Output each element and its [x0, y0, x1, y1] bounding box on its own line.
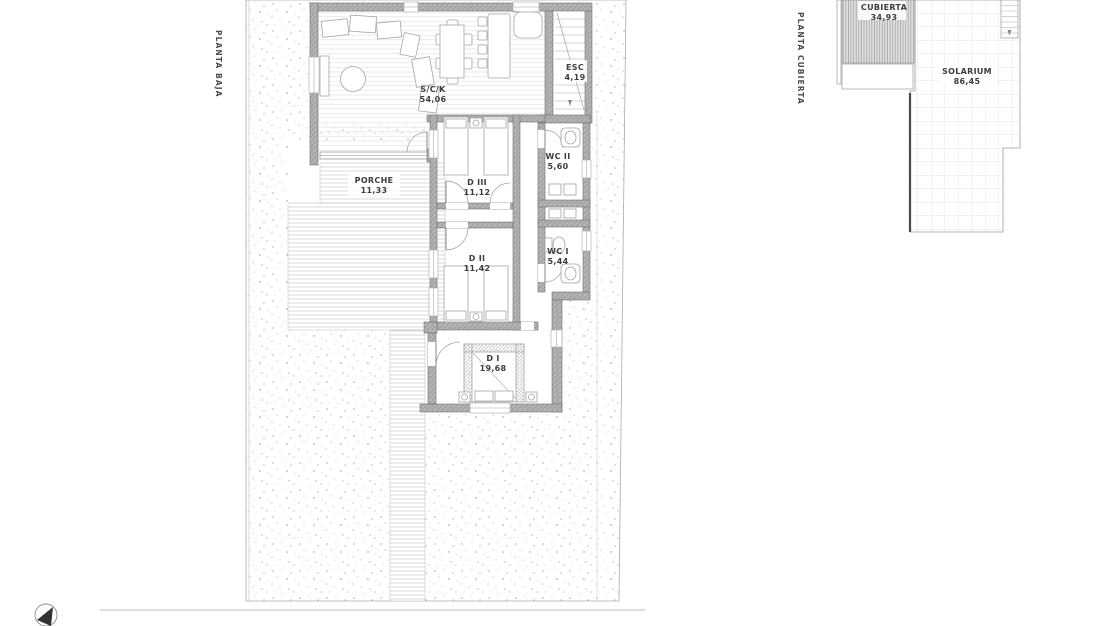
floor-plan-sheet: S/C/K 54,06 ESC 4,19 WC II 5,60 D III 11…	[0, 0, 1110, 626]
room-label-wc2: WC II 5,60	[546, 152, 571, 171]
roof-edge-line	[837, 0, 841, 84]
svg-text:WC II: WC II	[546, 152, 571, 161]
tv-shelf	[320, 56, 329, 96]
svg-text:19,68: 19,68	[480, 364, 507, 373]
svg-text:5,44: 5,44	[548, 257, 569, 266]
wc2-appliance	[549, 184, 561, 195]
svg-text:11,12: 11,12	[464, 188, 491, 197]
svg-text:5,60: 5,60	[548, 162, 569, 171]
room-label-wc1: WC I 5,44	[547, 247, 569, 266]
plan-title-planta-cubierta: PLANTA CUBIERTA	[796, 12, 805, 105]
north-arrow-icon	[35, 604, 57, 626]
plan-drawing: S/C/K 54,06 ESC 4,19 WC II 5,60 D III 11…	[0, 0, 1110, 626]
svg-text:ESC: ESC	[566, 63, 584, 72]
room-label-sck: S/C/K 54,06	[420, 85, 447, 104]
sliding-door	[320, 152, 427, 159]
roof-overhang	[842, 64, 913, 89]
plan-title-planta-baja: PLANTA BAJA	[214, 30, 223, 98]
svg-text:D II: D II	[469, 254, 486, 263]
coffee-table	[341, 67, 366, 92]
room-label-esc: ESC 4,19	[563, 60, 587, 82]
kitchen-counter	[514, 12, 542, 38]
svg-text:D I: D I	[486, 354, 499, 363]
room-label-porche: PORCHE 11,33	[348, 173, 400, 196]
svg-text:11,42: 11,42	[464, 264, 491, 273]
svg-text:CUBIERTA: CUBIERTA	[861, 3, 908, 12]
svg-text:54,06: 54,06	[420, 95, 447, 104]
svg-text:34,93: 34,93	[871, 13, 898, 22]
svg-text:11,33: 11,33	[361, 186, 388, 195]
roof-stairs	[1001, 0, 1018, 38]
plan-planta-cubierta: CUBIERTA 34,93 SOLARIUM 86,45 PLANTA CUB…	[796, 0, 1020, 232]
svg-text:SOLARIUM: SOLARIUM	[942, 67, 992, 76]
svg-text:WC I: WC I	[547, 247, 569, 256]
svg-text:S/C/K: S/C/K	[420, 85, 446, 94]
plan-planta-baja: S/C/K 54,06 ESC 4,19 WC II 5,60 D III 11…	[100, 0, 645, 610]
svg-text:4,19: 4,19	[565, 73, 586, 82]
room-label-cubierta: CUBIERTA 34,93	[858, 1, 908, 22]
svg-text:86,45: 86,45	[954, 77, 981, 86]
svg-text:D III: D III	[467, 178, 487, 187]
room-label-d3: D III 11,12	[464, 178, 491, 197]
shaft-appliance	[549, 209, 561, 218]
svg-text:PORCHE: PORCHE	[355, 176, 394, 185]
room-label-solarium: SOLARIUM 86,45	[938, 64, 996, 86]
